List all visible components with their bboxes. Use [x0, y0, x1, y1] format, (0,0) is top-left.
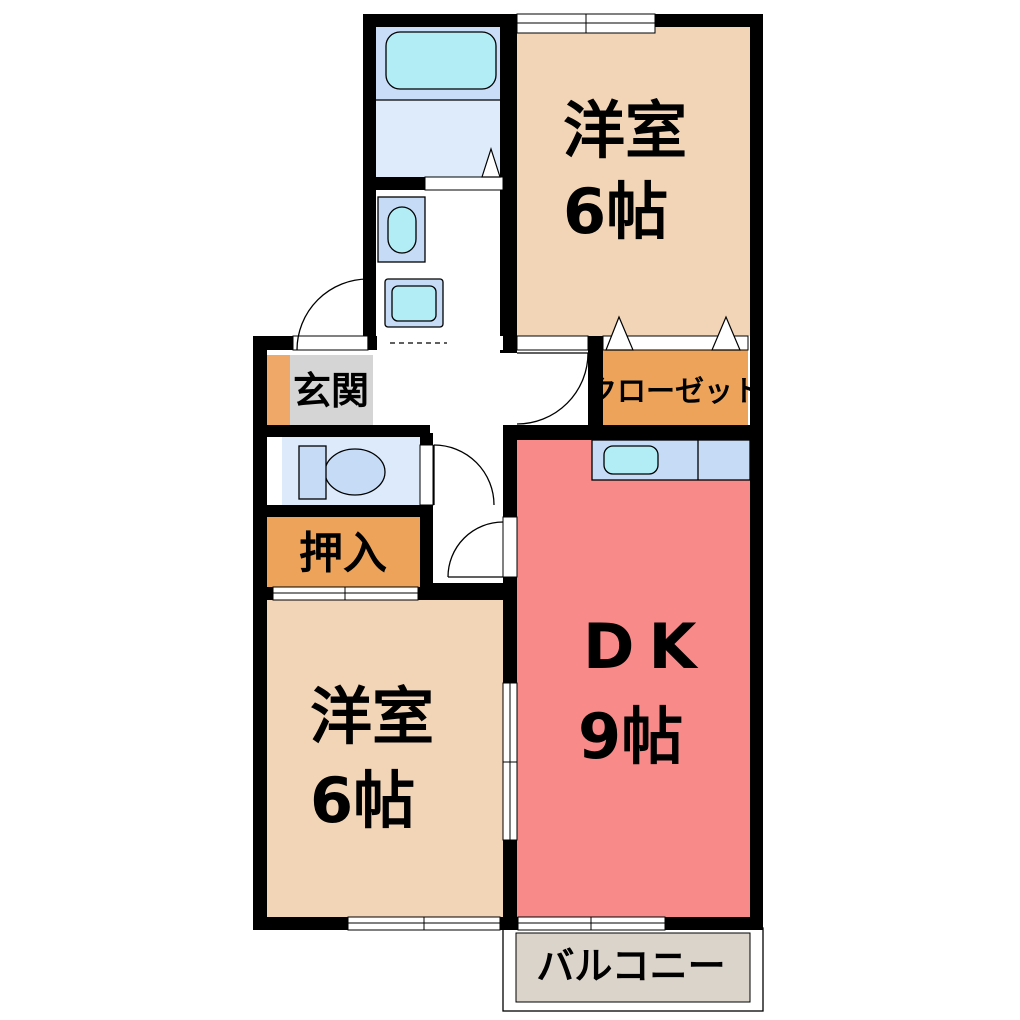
window-bottom-dk — [518, 917, 665, 930]
wall-toilet-post-top — [420, 433, 433, 445]
wall-bath-bottom — [363, 177, 425, 190]
bedroom-top-size: 6帖 — [563, 175, 668, 248]
bathtub-icon — [386, 32, 496, 89]
oshiire-sliding-door — [273, 587, 418, 600]
dk-door-sill — [503, 517, 517, 577]
closet-label: クローゼット — [588, 374, 762, 408]
dk-door-arc — [448, 522, 503, 577]
toilet-tank-icon — [299, 446, 326, 499]
floorplan-canvas: 洋室 6帖 洋室 6帖 DK 9帖 玄関 押入 クローゼット バルコニー — [0, 0, 1020, 1020]
washing-machine-drum-icon — [392, 286, 436, 321]
bedroom-bottom-label: 洋室 — [310, 680, 434, 753]
wall-dk-top — [503, 425, 763, 440]
wall-dk-left-lower — [503, 840, 517, 917]
balcony-label: バルコニー — [536, 944, 725, 988]
wall-bottom — [253, 917, 763, 930]
toilet-door-arc — [434, 445, 494, 505]
washbasin-bowl-icon — [388, 207, 416, 253]
wall-oshiire-band-r — [418, 587, 517, 600]
wall-left-outer-lower — [253, 336, 267, 930]
entrance-door-sill — [293, 336, 368, 350]
kitchen-sink-icon — [604, 446, 658, 474]
bath-floor — [376, 100, 500, 177]
wall-dk-left-upper — [503, 427, 517, 517]
floorplan-drawing: 洋室 6帖 洋室 6帖 DK 9帖 玄関 押入 クローゼット バルコニー — [0, 0, 1020, 1020]
oshiire-label: 押入 — [299, 528, 387, 579]
partition-sliding-door — [503, 683, 517, 840]
entrance-step — [267, 355, 290, 425]
window-bottom-left — [348, 917, 500, 930]
dk-label: DK — [583, 610, 711, 683]
room-bedroom-bottom-floor — [267, 600, 503, 917]
dk-size: 9帖 — [578, 700, 683, 773]
wall-dk-left-mid — [503, 577, 517, 683]
toilet-door-sill — [420, 445, 433, 505]
bedroom-top-door-arc — [517, 353, 588, 424]
window-top — [517, 14, 655, 33]
entrance-label: 玄関 — [293, 369, 369, 413]
wall-entry-bottom — [253, 425, 430, 437]
bedroom-top-label: 洋室 — [563, 94, 687, 167]
toilet-bowl-icon — [325, 449, 385, 495]
bath-door-sill — [425, 177, 503, 190]
wall-below-toilet — [253, 505, 433, 517]
wall-right-outer — [750, 14, 763, 930]
bedroom-bottom-size: 6帖 — [310, 764, 415, 837]
bedroom-top-door-sill — [517, 336, 588, 350]
